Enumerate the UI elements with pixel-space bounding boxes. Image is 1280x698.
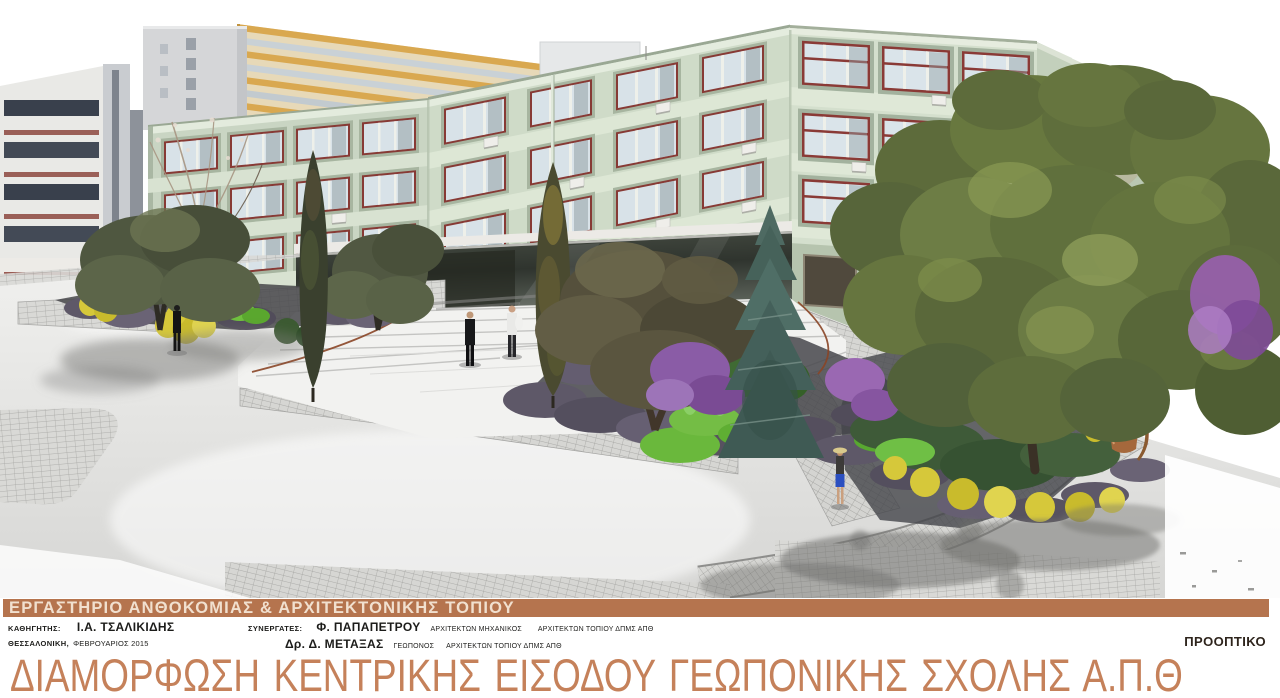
collaborator-name: Δρ. Δ. ΜΕΤΑΞΑΣ	[285, 637, 383, 651]
perspective-rendering	[0, 0, 1280, 598]
collaborator-title: ΑΡΧΙΤΕΚΤΩΝ ΤΟΠΙΟΥ ΔΠΜΣ ΑΠΘ	[538, 626, 654, 633]
collaborator-title: ΑΡΧΙΤΕΚΤΩΝ ΤΟΠΙΟΥ ΔΠΜΣ ΑΠΘ	[446, 643, 562, 650]
professor-row: ΚΑΘΗΓΗΤΗΣ: Ι.Α. ΤΣΑΛΙΚΙΔΗΣ	[8, 620, 174, 634]
collaborator-row-1: ΣΥΝΕΡΓΑΤΕΣ: Φ. ΠΑΠΑΠΕΤΡΟΥ ΑΡΧΙΤΕΚΤΩΝ ΜΗΧ…	[248, 620, 653, 634]
professor-label: ΚΑΘΗΓΗΤΗΣ:	[8, 624, 61, 633]
view-type-label: ΠΡΟΟΠΤΙΚΟ	[1184, 634, 1266, 649]
gray-slab-building	[143, 26, 247, 130]
date: ΦΕΒΡΟΥΑΡΙΟΣ 2015	[73, 639, 149, 648]
collaborator-title: ΓΕΩΠΟΝΟΣ	[393, 643, 434, 650]
place: ΘΕΣΣΑΛΟΝΙΚΗ,	[8, 639, 69, 648]
lab-banner: ΕΡΓΑΣΤΗΡΙΟ ΑΝΘΟΚΟΜΙΑΣ & ΑΡΧΙΤΕΚΤΟΝΙΚΗΣ Τ…	[3, 599, 1269, 617]
collaborator-name: Φ. ΠΑΠΑΠΕΤΡΟΥ	[316, 620, 420, 634]
project-title: ΔΙΑΜΟΡΦΩΣΗ ΚΕΝΤΡΙΚΗΣ ΕΙΣΟΔΟΥ ΓΕΩΠΟΝΙΚΗΣ …	[10, 653, 1183, 698]
collaborator-title: ΑΡΧΙΤΕΚΤΩΝ ΜΗΧΑΝΙΚΟΣ	[431, 626, 522, 633]
professor-name: Ι.Α. ΤΣΑΛΙΚΙΔΗΣ	[77, 620, 175, 634]
place-date-row: ΘΕΣΣΑΛΟΝΙΚΗ, ΦΕΒΡΟΥΑΡΙΟΣ 2015	[8, 639, 149, 648]
presentation-board: ΕΡΓΑΣΤΗΡΙΟ ΑΝΘΟΚΟΜΙΑΣ & ΑΡΧΙΤΕΚΤΟΝΙΚΗΣ Τ…	[0, 0, 1280, 698]
collaborators-label: ΣΥΝΕΡΓΑΤΕΣ:	[248, 624, 302, 633]
collaborator-row-2: Δρ. Δ. ΜΕΤΑΞΑΣ ΓΕΩΠΟΝΟΣ ΑΡΧΙΤΕΚΤΩΝ ΤΟΠΙΟ…	[285, 637, 562, 651]
